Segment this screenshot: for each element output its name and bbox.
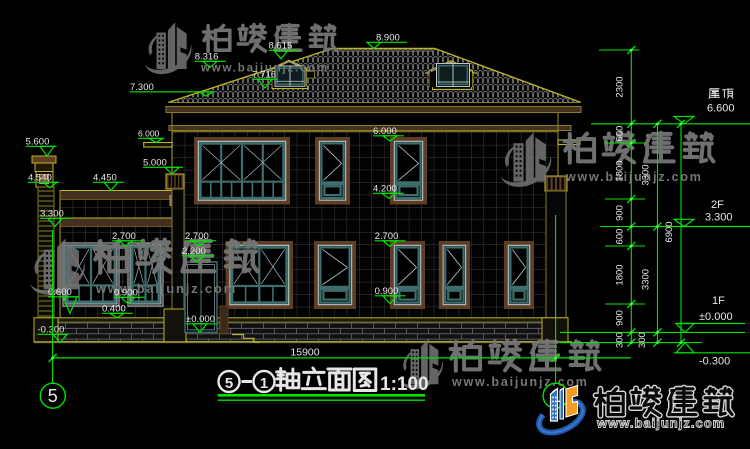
svg-text:2F: 2F	[711, 199, 724, 211]
svg-text:300: 300	[615, 332, 626, 348]
svg-text:900: 900	[615, 310, 626, 326]
svg-text:15900: 15900	[290, 347, 319, 359]
svg-text:3300: 3300	[641, 164, 652, 185]
svg-text:www.baijunjz.com: www.baijunjz.com	[565, 170, 703, 184]
svg-text:±0.000: ±0.000	[699, 311, 733, 323]
svg-text:300: 300	[637, 332, 648, 348]
svg-text:5: 5	[48, 386, 58, 406]
svg-text:1:100: 1:100	[380, 374, 429, 395]
svg-text:1800: 1800	[615, 160, 626, 181]
svg-text:www.baijunjz.com: www.baijunjz.com	[596, 416, 725, 431]
svg-text:6900: 6900	[664, 221, 675, 242]
svg-text:900: 900	[615, 205, 626, 221]
svg-text:600: 600	[615, 229, 626, 245]
svg-text:6.000: 6.000	[138, 129, 160, 139]
svg-text:600: 600	[615, 126, 626, 142]
svg-text:3300: 3300	[641, 269, 652, 290]
svg-text:-0.300: -0.300	[699, 356, 730, 368]
svg-text:1800: 1800	[615, 264, 626, 285]
svg-text:1: 1	[260, 375, 268, 392]
svg-text:2300: 2300	[615, 76, 626, 97]
svg-text:www.baijunjz.com: www.baijunjz.com	[451, 375, 589, 389]
svg-text:5: 5	[225, 375, 233, 392]
svg-text:6.600: 6.600	[707, 103, 735, 115]
svg-text:3.300: 3.300	[705, 212, 733, 224]
svg-text:1F: 1F	[712, 295, 725, 307]
